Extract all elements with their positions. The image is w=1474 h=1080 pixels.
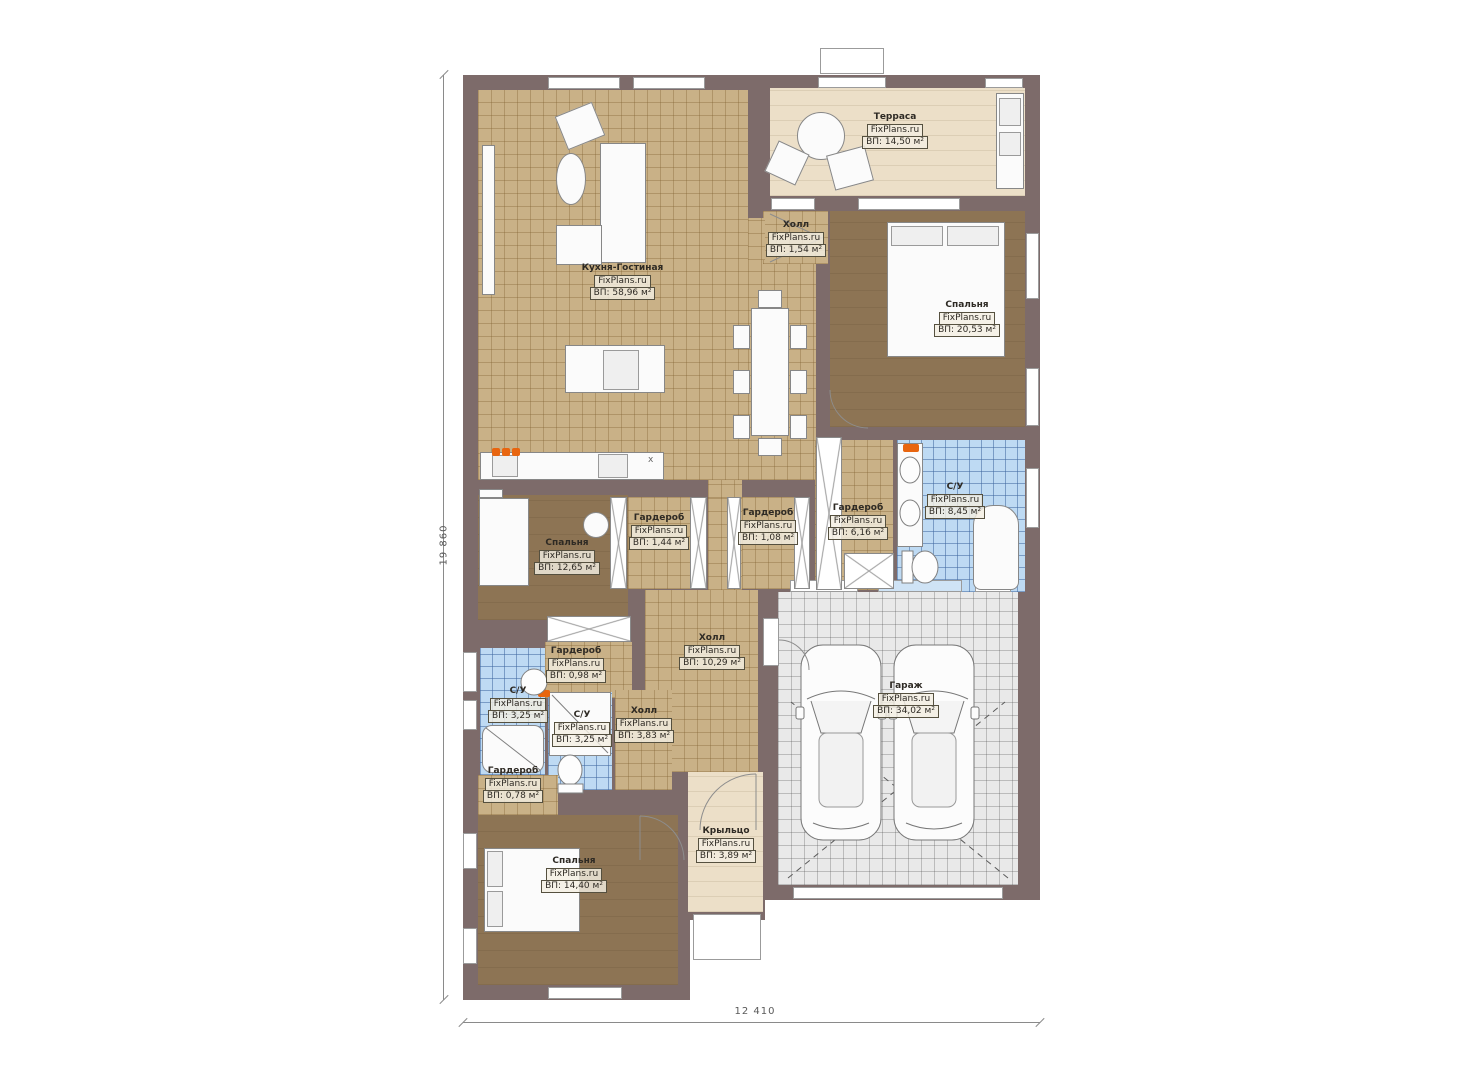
room-area: ВП: 3,83 м² xyxy=(614,730,674,743)
room-name: Гардероб xyxy=(833,503,884,514)
room-area: ВП: 14,40 м² xyxy=(541,880,607,893)
room-area: ВП: 34,02 м² xyxy=(873,705,939,718)
room-area: ВП: 6,16 м² xyxy=(828,527,888,540)
room-label-bathroom-small: С/У FixPlans.ru ВП: 3,25 м² xyxy=(552,710,612,747)
room-name: Терраса xyxy=(874,112,917,123)
room-label-wardrobe-098: Гардероб FixPlans.ru ВП: 0,98 м² xyxy=(536,646,616,683)
room-name: Гараж xyxy=(889,681,922,692)
shower-glass xyxy=(486,728,540,770)
room-label-kitchen-living: Кухня-Гостиная FixPlans.ru ВП: 58,96 м² xyxy=(565,263,680,300)
room-label-bathroom-left: С/У FixPlans.ru ВП: 3,25 м² xyxy=(488,686,548,723)
floor-plan-page: x xyxy=(0,0,1474,1080)
room-name: Крыльцо xyxy=(702,826,749,837)
room-area: ВП: 1,44 м² xyxy=(629,537,689,550)
room-name: Холл xyxy=(699,633,725,644)
room-name: Холл xyxy=(783,220,809,231)
room-name: С/У xyxy=(947,482,964,493)
room-label-bedroom-mid: Спальня FixPlans.ru ВП: 12,65 м² xyxy=(527,538,607,575)
room-area: ВП: 1,54 м² xyxy=(766,244,826,257)
toilet-tank xyxy=(902,551,913,583)
room-name: Спальня xyxy=(552,856,595,867)
toilet xyxy=(912,551,938,583)
room-name: Гардероб xyxy=(488,766,539,777)
room-name: С/У xyxy=(510,686,527,697)
room-name: Холл xyxy=(631,706,657,717)
room-label-porch: Крыльцо FixPlans.ru ВП: 3,89 м² xyxy=(691,826,761,863)
room-area: ВП: 20,53 м² xyxy=(934,324,1000,337)
room-label-wardrobe-616: Гардероб FixPlans.ru ВП: 6,16 м² xyxy=(822,503,894,540)
room-area: ВП: 58,96 м² xyxy=(590,287,656,300)
room-name: С/У xyxy=(574,710,591,721)
room-label-hall-main: Холл FixPlans.ru ВП: 10,29 м² xyxy=(672,633,752,670)
car-icon xyxy=(889,645,979,840)
room-label-terrace: Терраса FixPlans.ru ВП: 14,50 м² xyxy=(845,112,945,149)
room-name: Гардероб xyxy=(551,646,602,657)
room-name: Спальня xyxy=(945,300,988,311)
room-area: ВП: 3,89 м² xyxy=(696,850,756,863)
room-label-hall-entry: Холл FixPlans.ru ВП: 1,54 м² xyxy=(765,220,827,257)
sink xyxy=(900,457,920,483)
room-area: ВП: 14,50 м² xyxy=(862,136,928,149)
toilet xyxy=(558,755,582,785)
room-name: Кухня-Гостиная xyxy=(582,263,664,274)
room-area: ВП: 3,25 м² xyxy=(488,710,548,723)
room-label-wardrobe-078: Гардероб FixPlans.ru ВП: 0,78 м² xyxy=(478,766,548,803)
room-name: Гардероб xyxy=(634,513,685,524)
toilet-tank xyxy=(558,784,583,793)
room-name: Спальня xyxy=(545,538,588,549)
room-area: ВП: 0,78 м² xyxy=(483,790,543,803)
car-icon xyxy=(796,645,886,840)
room-label-garage: Гараж FixPlans.ru ВП: 34,02 м² xyxy=(866,681,946,718)
room-name: Гардероб xyxy=(743,508,794,519)
room-label-hall-small: Холл FixPlans.ru ВП: 3,83 м² xyxy=(615,706,673,743)
room-label-wardrobe-144: Гардероб FixPlans.ru ВП: 1,44 м² xyxy=(625,513,693,550)
room-label-wardrobe-108: Гардероб FixPlans.ru ВП: 1,08 м² xyxy=(738,508,798,545)
room-area: ВП: 10,29 м² xyxy=(679,657,745,670)
room-label-bedroom-top: Спальня FixPlans.ru ВП: 20,53 м² xyxy=(922,300,1012,337)
room-label-bedroom-bottom: Спальня FixPlans.ru ВП: 14,40 м² xyxy=(534,856,614,893)
room-area: ВП: 0,98 м² xyxy=(546,670,606,683)
room-area: ВП: 1,08 м² xyxy=(738,532,798,545)
room-area: ВП: 12,65 м² xyxy=(534,562,600,575)
room-label-bathroom-top: С/У FixPlans.ru ВП: 8,45 м² xyxy=(915,482,995,519)
room-area: ВП: 3,25 м² xyxy=(552,734,612,747)
room-area: ВП: 8,45 м² xyxy=(925,506,985,519)
